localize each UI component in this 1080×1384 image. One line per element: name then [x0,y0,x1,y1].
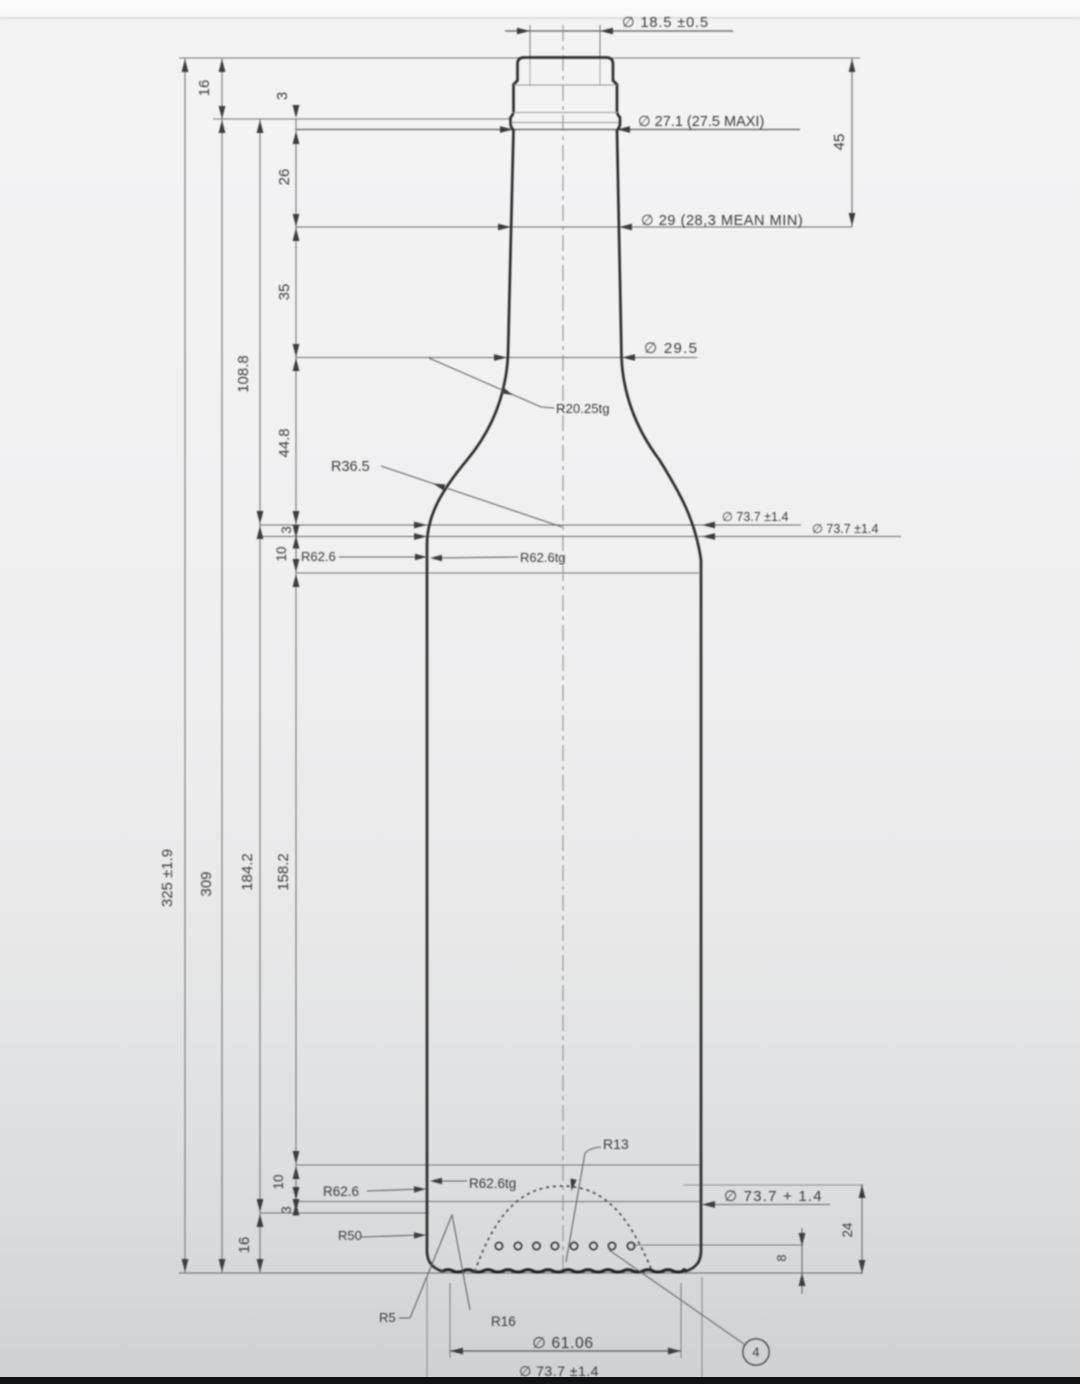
svg-text:R13: R13 [603,1136,629,1152]
svg-text:26: 26 [276,169,293,186]
svg-text:16: 16 [196,80,213,97]
svg-text:R62.6tg: R62.6tg [469,1176,516,1191]
svg-text:10: 10 [271,1174,286,1189]
svg-text:3: 3 [279,1206,294,1214]
svg-text:∅ 73.7 + 1.4: ∅ 73.7 + 1.4 [724,1188,823,1205]
svg-text:3: 3 [279,526,294,534]
svg-text:35: 35 [276,284,293,301]
svg-text:∅ 73.7 ±1.4: ∅ 73.7 ±1.4 [812,522,878,536]
svg-text:16: 16 [236,1237,253,1254]
svg-text:∅ 29.5: ∅ 29.5 [644,340,698,357]
svg-text:4: 4 [753,1346,760,1360]
svg-text:44.8: 44.8 [276,428,293,457]
svg-text:3: 3 [274,92,291,100]
svg-text:8: 8 [775,1254,789,1261]
svg-text:158.2: 158.2 [275,853,292,891]
svg-text:R36.5: R36.5 [331,459,370,475]
svg-text:R20.25tg: R20.25tg [556,401,610,416]
svg-text:108.8: 108.8 [235,355,252,393]
svg-text:R50: R50 [338,1228,362,1243]
svg-text:∅ 29 (28,3 MEAN MIN): ∅ 29 (28,3 MEAN MIN) [641,213,803,229]
svg-text:325 ±1.9: 325 ±1.9 [159,849,176,907]
svg-text:R62.6: R62.6 [301,549,336,564]
svg-text:10: 10 [274,546,289,561]
svg-text:R16: R16 [491,1314,516,1329]
svg-text:45: 45 [831,134,848,151]
svg-text:∅ 18.5 ±0.5: ∅ 18.5 ±0.5 [622,15,709,31]
svg-text:24: 24 [840,1222,855,1238]
svg-text:∅ 27.1 (27.5 MAXI): ∅ 27.1 (27.5 MAXI) [638,114,764,130]
svg-text:R62.6tg: R62.6tg [520,550,566,565]
svg-text:R5: R5 [379,1310,396,1325]
svg-text:∅ 61.06: ∅ 61.06 [532,1335,594,1352]
svg-text:R62.6: R62.6 [323,1184,359,1199]
svg-text:309: 309 [198,871,215,896]
svg-text:184.2: 184.2 [239,853,256,891]
svg-text:∅ 73.7 ±1.4: ∅ 73.7 ±1.4 [722,510,788,524]
